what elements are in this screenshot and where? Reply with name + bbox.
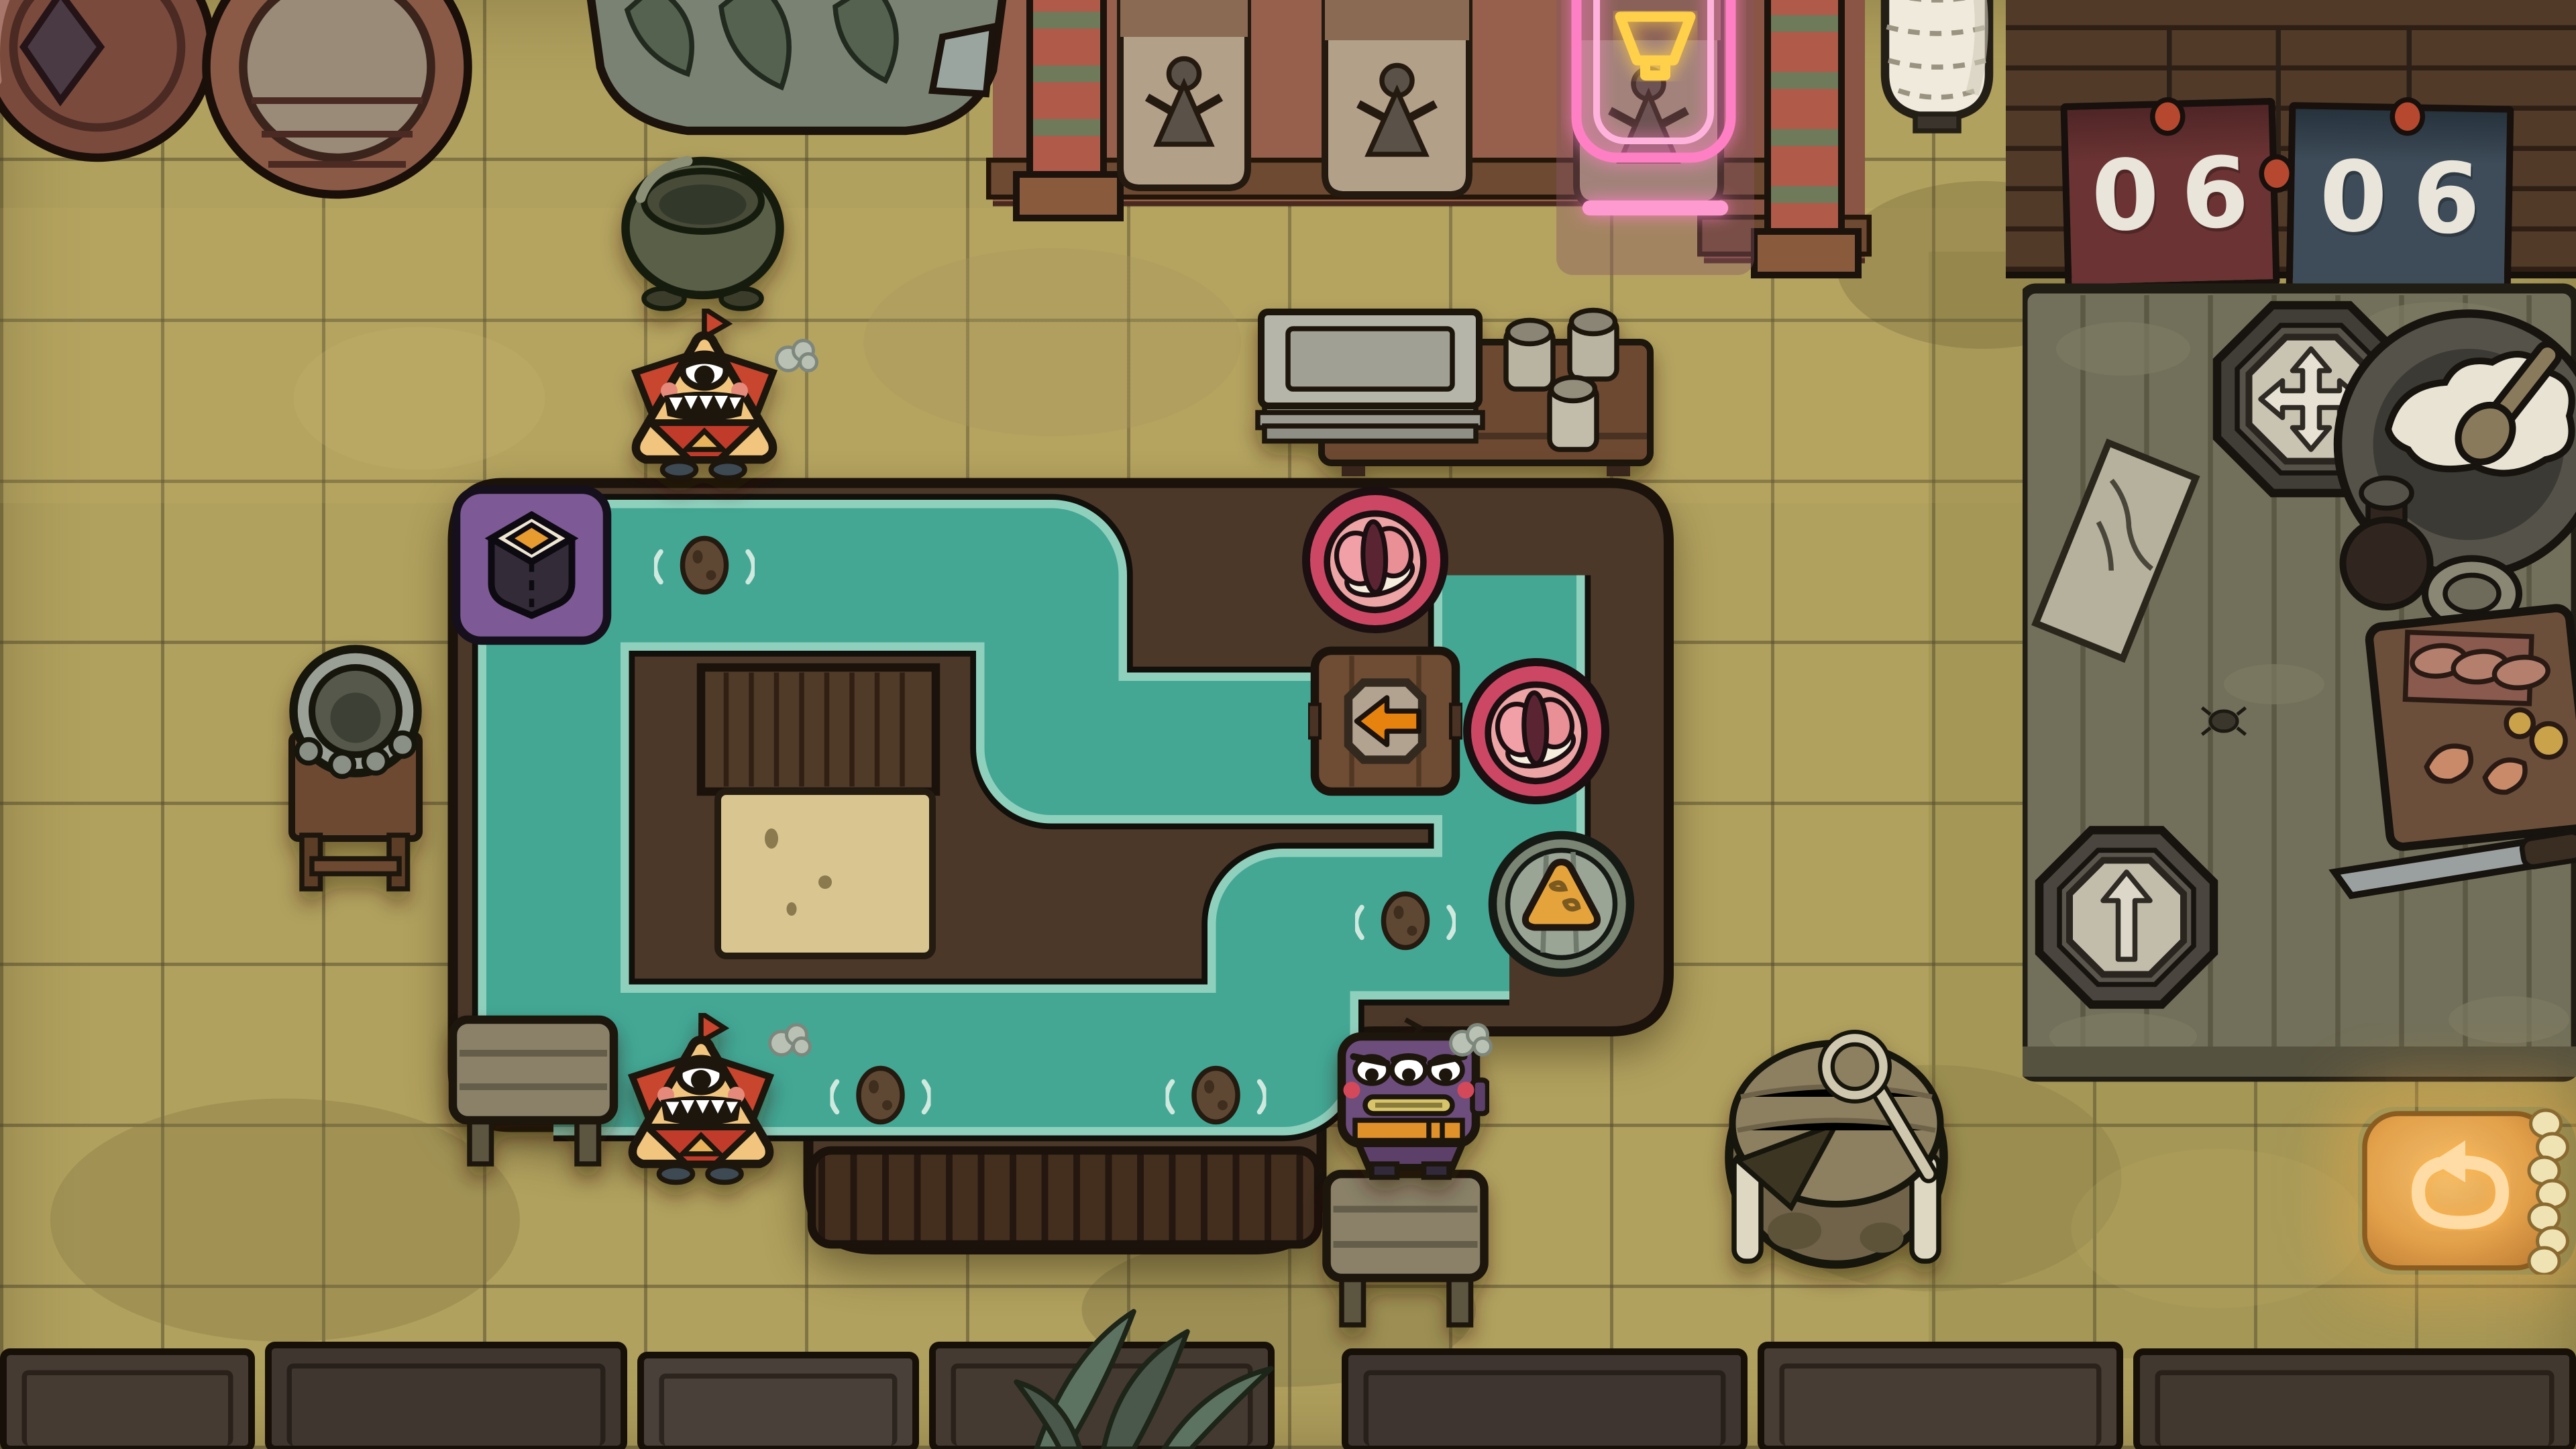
maki-dispenser[interactable] [449,483,614,647]
island [718,792,932,956]
robot-eyes [1354,1057,1464,1083]
storage-crate [2133,1348,2576,1449]
storage-crate [265,1342,627,1449]
tray-side-table [1241,295,1664,480]
smoke-puff [765,1020,815,1060]
bamboo-leaves [1003,1301,1355,1449]
score-pin [2150,97,2186,136]
game-viewport: 0 6 0 6 [0,0,2576,1449]
barrel [195,0,480,235]
striped-pillar [1751,0,1862,288]
storage-crate [1342,1348,1748,1449]
sushi-plate [1459,654,1613,808]
game-stage: 0 6 0 6 [0,0,2576,1449]
smoke-puff [771,335,822,376]
maki-roll-icon [492,515,572,616]
floor-stain [2072,1149,2365,1309]
undo-button[interactable] [2358,1107,2576,1275]
score-digit: 6 [2412,150,2481,248]
cutting-board-with-fish [2368,607,2576,849]
up-arrow-token[interactable] [2039,830,2214,1005]
score-digit: 6 [2180,144,2250,243]
storage-crate [1758,1342,2123,1449]
wall-banner [1318,0,1476,201]
paper-lantern [1862,0,2012,151]
floor-stain [864,248,1242,436]
floor-stain [294,327,545,470]
soup-pot [614,134,792,312]
scoreboard: 0 6 0 6 [2056,30,2569,305]
neon-bowl-sign [1553,0,1761,285]
striped-pillar [1013,0,1124,231]
smoke-puff [1446,1020,1496,1060]
storage-crate [0,1348,255,1449]
direction-tile-left[interactable] [1308,644,1462,798]
wall-banner [1114,0,1254,195]
score-pin [2390,97,2426,136]
sushi-plate [1298,483,1452,637]
dock-planks [812,1150,1318,1244]
toolbox-table [2023,282,2576,1107]
wooden-bench [443,1010,624,1181]
score-digit: 0 [2090,146,2161,246]
storage-crate [637,1352,919,1449]
triangle-monster [621,1013,782,1187]
triangle-monster [624,309,785,483]
score-pin [2259,154,2295,193]
score-digit: 0 [2318,148,2387,246]
tofu-plate [1486,828,1637,979]
water-barrel-with-ladle [1717,1013,1959,1298]
tray-stack [1258,312,1483,441]
stone-mortar-stand [272,637,439,899]
